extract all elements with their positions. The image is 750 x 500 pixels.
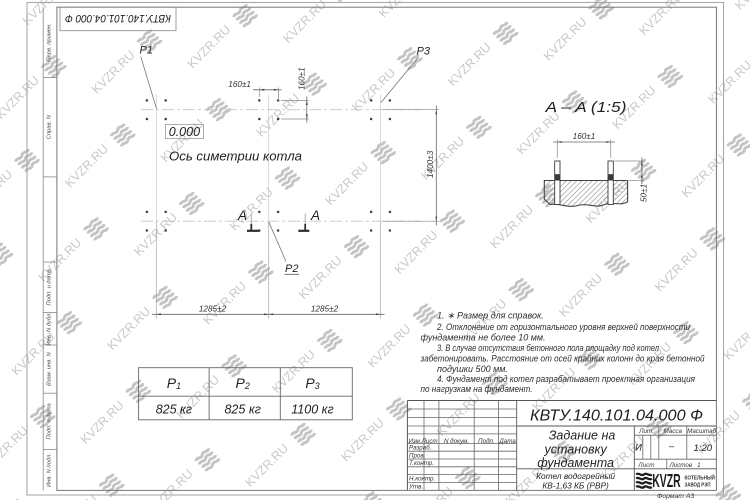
svg-text:1:20: 1:20 [694,443,713,454]
svg-text:4. Фундамент под котел разраба: 4. Фундамент под котел разрабатывает про… [437,374,695,384]
svg-text:1400±3: 1400±3 [426,150,435,178]
svg-text:Разраб.: Разраб. [409,445,431,452]
svg-text:Котел водогрейный: Котел водогрейный [536,471,615,481]
svg-text:A: A [310,208,320,223]
svg-text:3. В случае отсутствия бетонно: 3. В случае отсутствия бетонного пола пл… [437,343,659,353]
svg-text:Утв.: Утв. [408,484,423,491]
svg-text:2. Отклонение от горизонтально: 2. Отклонение от горизонтального уровня … [436,322,690,332]
svg-text:1: 1 [697,462,700,469]
svg-text:P1: P1 [140,45,153,57]
svg-text:Инв. N дубл.: Инв. N дубл. [47,312,53,346]
svg-text:0.000: 0.000 [169,125,200,139]
svg-text:160±1: 160±1 [298,67,307,90]
svg-text:по нагрузкам на фундамент.: по нагрузкам на фундамент. [421,384,533,394]
svg-text:Справ. N: Справ. N [47,114,53,139]
svg-text:Задание на: Задание на [549,429,616,443]
svg-text:забетонировать. Расстояние от: забетонировать. Расстояние от осей крайн… [420,353,705,363]
svg-text:50±1: 50±1 [640,184,649,202]
svg-text:1285±2: 1285±2 [311,304,339,313]
svg-text:Взам. инв. N: Взам. инв. N [47,351,53,386]
svg-text:Подп. и дата: Подп. и дата [47,402,53,439]
svg-text:И: И [635,443,642,454]
svg-text:КОТЕЛЬНЫЙ: КОТЕЛЬНЫЙ [685,473,715,481]
svg-text:КВТУ.140.101.04.000 Ф: КВТУ.140.101.04.000 Ф [530,408,703,425]
svg-text:–: – [668,441,675,452]
svg-text:P2: P2 [285,263,298,275]
svg-text:1100 кг: 1100 кг [291,403,333,417]
svg-text:Лит.: Лит. [638,428,654,435]
svg-text:Масштаб: Масштаб [687,428,716,435]
svg-text:Перв. примен.: Перв. примен. [47,23,53,62]
svg-text:Ось симетрии котла: Ось симетрии котла [169,149,302,163]
svg-text:Масса: Масса [664,428,683,435]
svg-text:ЗАВОД РЭП: ЗАВОД РЭП [685,483,711,489]
svg-text:Лист: Лист [637,462,654,469]
svg-text:Формат А3: Формат А3 [657,493,694,500]
svg-text:Пров.: Пров. [409,452,425,459]
svg-text:фундамента не более 10 мм.: фундамента не более 10 мм. [421,333,546,343]
svg-text:подушки 500 мм.: подушки 500 мм. [437,364,508,374]
svg-text:KVZR: KVZR [652,470,681,491]
svg-text:Н.контр.: Н.контр. [409,476,435,483]
svg-text:P3: P3 [417,46,431,58]
svg-text:установку: установку [543,443,607,457]
svg-text:825 кг: 825 кг [224,403,260,417]
svg-text:1. ∗ Размер для справок.: 1. ∗ Размер для справок. [437,311,544,321]
svg-text:Т.контр.: Т.контр. [409,460,434,467]
svg-text:A: A [237,208,247,223]
svg-text:160±1: 160±1 [573,132,596,141]
svg-text:Подп. и дата: Подп. и дата [47,268,53,305]
svg-text:Дата: Дата [498,438,516,445]
svg-text:КВТУ.140.101.04.000 Ф: КВТУ.140.101.04.000 Ф [65,12,171,24]
svg-text:Листов: Листов [669,462,693,469]
svg-text:фундамента: фундамента [537,456,614,470]
svg-text:N докум.: N докум. [444,438,469,445]
svg-text:825 кг: 825 кг [156,403,192,417]
svg-text:1285±2: 1285±2 [199,304,227,313]
svg-text:Инв. N подл.: Инв. N подл. [47,453,53,487]
svg-text:КВ-1,63 КБ (РВР): КВ-1,63 КБ (РВР) [542,481,609,491]
svg-text:A – A (1:5): A – A (1:5) [544,100,626,116]
svg-text:160±1: 160±1 [228,80,251,89]
svg-text:Подп.: Подп. [478,438,494,445]
